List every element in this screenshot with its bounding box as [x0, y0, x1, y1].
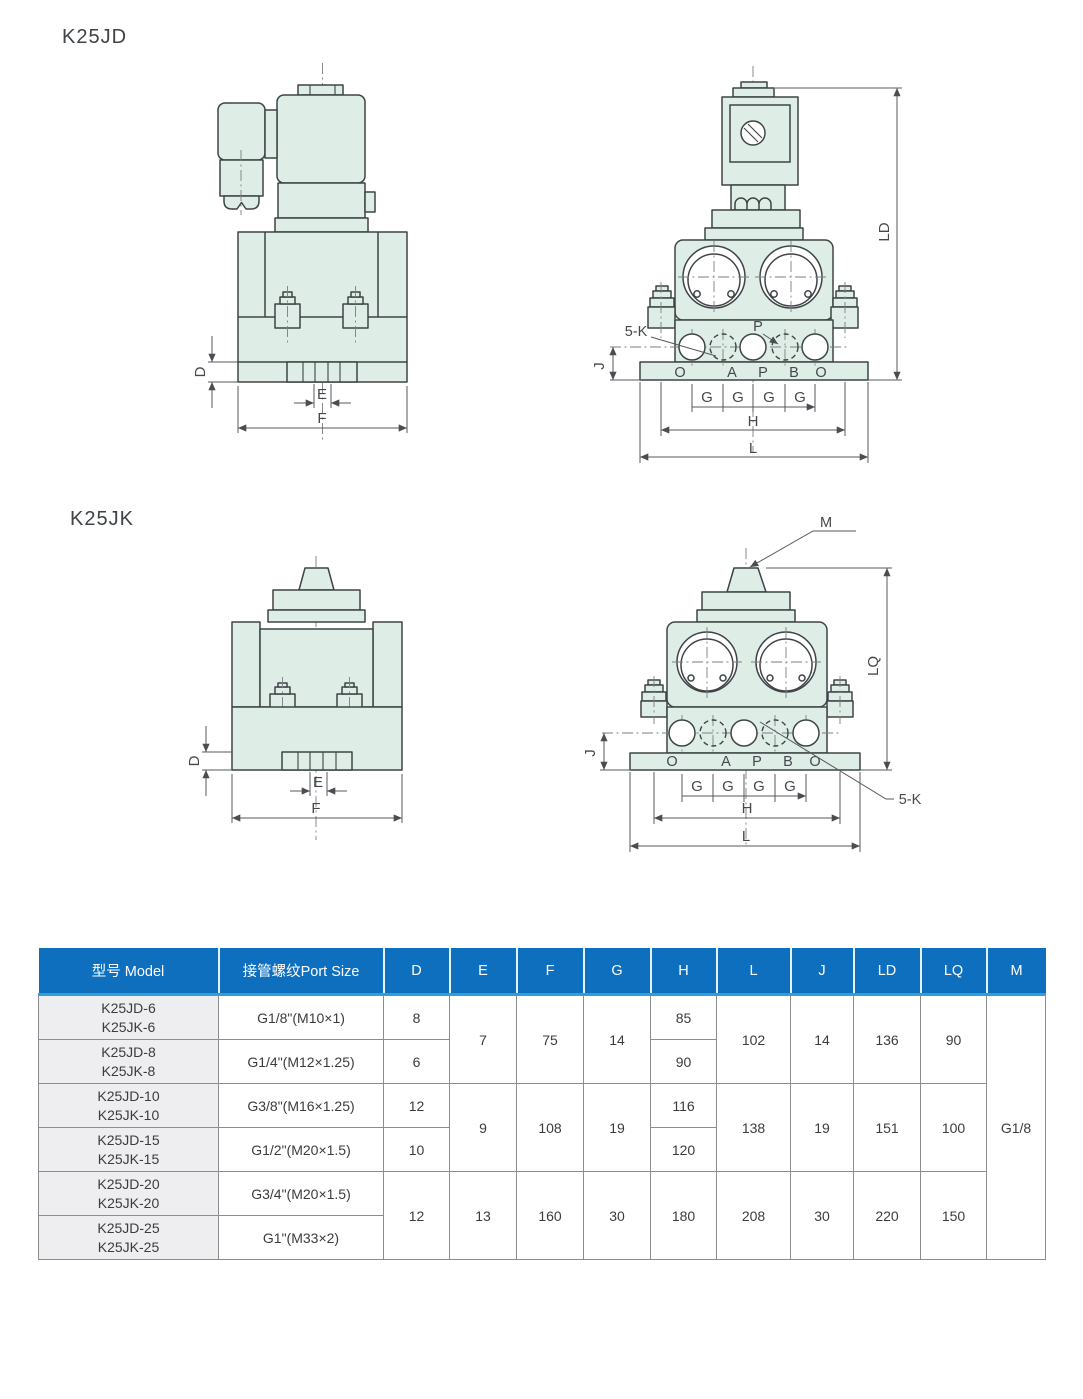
table-cell: 12: [384, 1084, 450, 1128]
k25jk-front-view-drawing: M O A P B O 5-K: [585, 505, 935, 870]
table-cell: 85: [651, 995, 717, 1040]
dim-label-g: G: [763, 389, 775, 406]
dim-label-d: D: [186, 755, 203, 766]
port-letter: P: [758, 365, 768, 381]
table-row: K25JD-10 K25JK-10 G3/8"(M16×1.25) 12 9 1…: [39, 1084, 1046, 1128]
port-size-cell: G3/4"(M20×1.5): [219, 1172, 384, 1216]
port-letter: O: [809, 754, 820, 770]
table-cell: 108: [517, 1084, 584, 1172]
table-cell: 14: [584, 995, 651, 1084]
dim-label-j: J: [585, 749, 599, 757]
port-letter: O: [666, 754, 677, 770]
dim-label-g: G: [701, 389, 713, 406]
table-cell: G1/8: [987, 995, 1046, 1260]
table-cell: 90: [921, 995, 987, 1084]
model-cell: K25JD-6 K25JK-6: [39, 995, 219, 1040]
table-cell: 120: [651, 1128, 717, 1172]
port-letter: O: [674, 365, 685, 381]
dim-label-j: J: [591, 362, 608, 370]
table-cell: 180: [651, 1172, 717, 1260]
model-name: K25JK-6: [39, 1018, 218, 1036]
table-cell: 30: [791, 1172, 854, 1260]
dim-label-l: L: [742, 828, 750, 845]
table-header-row: 型号 Model 接管螺纹Port Size D E F G H L J LD …: [39, 948, 1046, 995]
dim-label-l: L: [749, 440, 757, 457]
port-size-cell: G3/8"(M16×1.25): [219, 1084, 384, 1128]
port-letter: B: [783, 754, 793, 770]
model-name: K25JD-10: [39, 1087, 218, 1105]
col-header-lq: LQ: [921, 948, 987, 995]
model-name: K25JK-10: [39, 1106, 218, 1124]
table-cell: 150: [921, 1172, 987, 1260]
five-k-callout: 5-K: [899, 792, 922, 808]
table-cell: 30: [584, 1172, 651, 1260]
col-header-port-size: 接管螺纹Port Size: [219, 948, 384, 995]
table-cell: 19: [584, 1084, 651, 1172]
table-row: K25JD-20 K25JK-20 G3/4"(M20×1.5) 12 13 1…: [39, 1172, 1046, 1216]
port-size-cell: G1/8"(M10×1): [219, 995, 384, 1040]
port-size-cell: G1"(M33×2): [219, 1216, 384, 1260]
table-cell: 75: [517, 995, 584, 1084]
col-header-m: M: [987, 948, 1046, 995]
table-cell: 10: [384, 1128, 450, 1172]
model-name: K25JK-20: [39, 1194, 218, 1212]
dim-label-e: E: [313, 774, 323, 791]
section-title-k25jd: K25JD: [62, 26, 127, 49]
model-cell: K25JD-25 K25JK-25: [39, 1216, 219, 1260]
table-cell: 151: [854, 1084, 921, 1172]
dim-label-lq: LQ: [865, 656, 882, 676]
table-cell: 19: [791, 1084, 854, 1172]
m-callout: M: [820, 515, 832, 531]
dimension-table: 型号 Model 接管螺纹Port Size D E F G H L J LD …: [38, 948, 1046, 1260]
model-cell: K25JD-15 K25JK-15: [39, 1128, 219, 1172]
table-cell: 6: [384, 1040, 450, 1084]
table-cell: 90: [651, 1040, 717, 1084]
port-letter: B: [789, 365, 799, 381]
table-cell: 8: [384, 995, 450, 1040]
model-cell: K25JD-20 K25JK-20: [39, 1172, 219, 1216]
dim-label-g: G: [794, 389, 806, 406]
port-letter: P: [752, 754, 762, 770]
dim-label-f: F: [311, 800, 320, 817]
port-size-cell: G1/2"(M20×1.5): [219, 1128, 384, 1172]
table-cell: 136: [854, 995, 921, 1084]
table-cell: 208: [717, 1172, 791, 1260]
model-name: K25JD-25: [39, 1219, 218, 1237]
dim-label-g: G: [784, 778, 796, 795]
table-cell: 14: [791, 995, 854, 1084]
table-cell: 12: [384, 1172, 450, 1260]
col-header-d: D: [384, 948, 450, 995]
col-header-j: J: [791, 948, 854, 995]
table-cell: 9: [450, 1084, 517, 1172]
col-header-model: 型号 Model: [39, 948, 219, 995]
table-cell: 13: [450, 1172, 517, 1260]
table-cell: 160: [517, 1172, 584, 1260]
col-header-e: E: [450, 948, 517, 995]
dim-label-f: F: [317, 410, 326, 427]
col-header-g: G: [584, 948, 651, 995]
model-cell: K25JD-10 K25JK-10: [39, 1084, 219, 1128]
dim-label-h: H: [742, 800, 753, 817]
port-size-cell: G1/4"(M12×1.25): [219, 1040, 384, 1084]
model-name: K25JK-8: [39, 1062, 218, 1080]
table-cell: 102: [717, 995, 791, 1084]
table-cell: 116: [651, 1084, 717, 1128]
port-p-callout: P: [753, 319, 763, 335]
dim-label-ld: LD: [876, 222, 893, 241]
model-name: K25JK-25: [39, 1238, 218, 1256]
model-cell: K25JD-8 K25JK-8: [39, 1040, 219, 1084]
k25jk-side-view-drawing: D E F: [185, 550, 425, 840]
dim-label-g: G: [732, 389, 744, 406]
dim-label-h: H: [748, 413, 759, 430]
col-header-f: F: [517, 948, 584, 995]
model-name: K25JD-20: [39, 1175, 218, 1193]
dim-label-g: G: [753, 778, 765, 795]
dim-label-d: D: [192, 366, 209, 377]
dim-label-g: G: [691, 778, 703, 795]
port-letter: A: [727, 365, 737, 381]
k25jd-front-view-drawing: P 5-K O A P B O J G G G G H L LD: [585, 60, 915, 470]
col-header-ld: LD: [854, 948, 921, 995]
model-name: K25JK-15: [39, 1150, 218, 1168]
dim-label-e: E: [317, 386, 327, 403]
model-name: K25JD-15: [39, 1131, 218, 1149]
k25jd-side-view-drawing: D E F: [190, 55, 460, 445]
five-k-callout: 5-K: [625, 324, 648, 340]
datasheet-page: K25JD K25JK D E: [0, 0, 1083, 1399]
section-title-k25jk: K25JK: [70, 508, 134, 531]
table-row: K25JD-6 K25JK-6 G1/8"(M10×1) 8 7 75 14 8…: [39, 995, 1046, 1040]
model-name: K25JD-6: [39, 999, 218, 1017]
table-cell: 138: [717, 1084, 791, 1172]
table-cell: 220: [854, 1172, 921, 1260]
col-header-l: L: [717, 948, 791, 995]
col-header-h: H: [651, 948, 717, 995]
table-cell: 7: [450, 995, 517, 1084]
port-letter: A: [721, 754, 731, 770]
dim-label-g: G: [722, 778, 734, 795]
table-cell: 100: [921, 1084, 987, 1172]
port-letter: O: [815, 365, 826, 381]
model-name: K25JD-8: [39, 1043, 218, 1061]
